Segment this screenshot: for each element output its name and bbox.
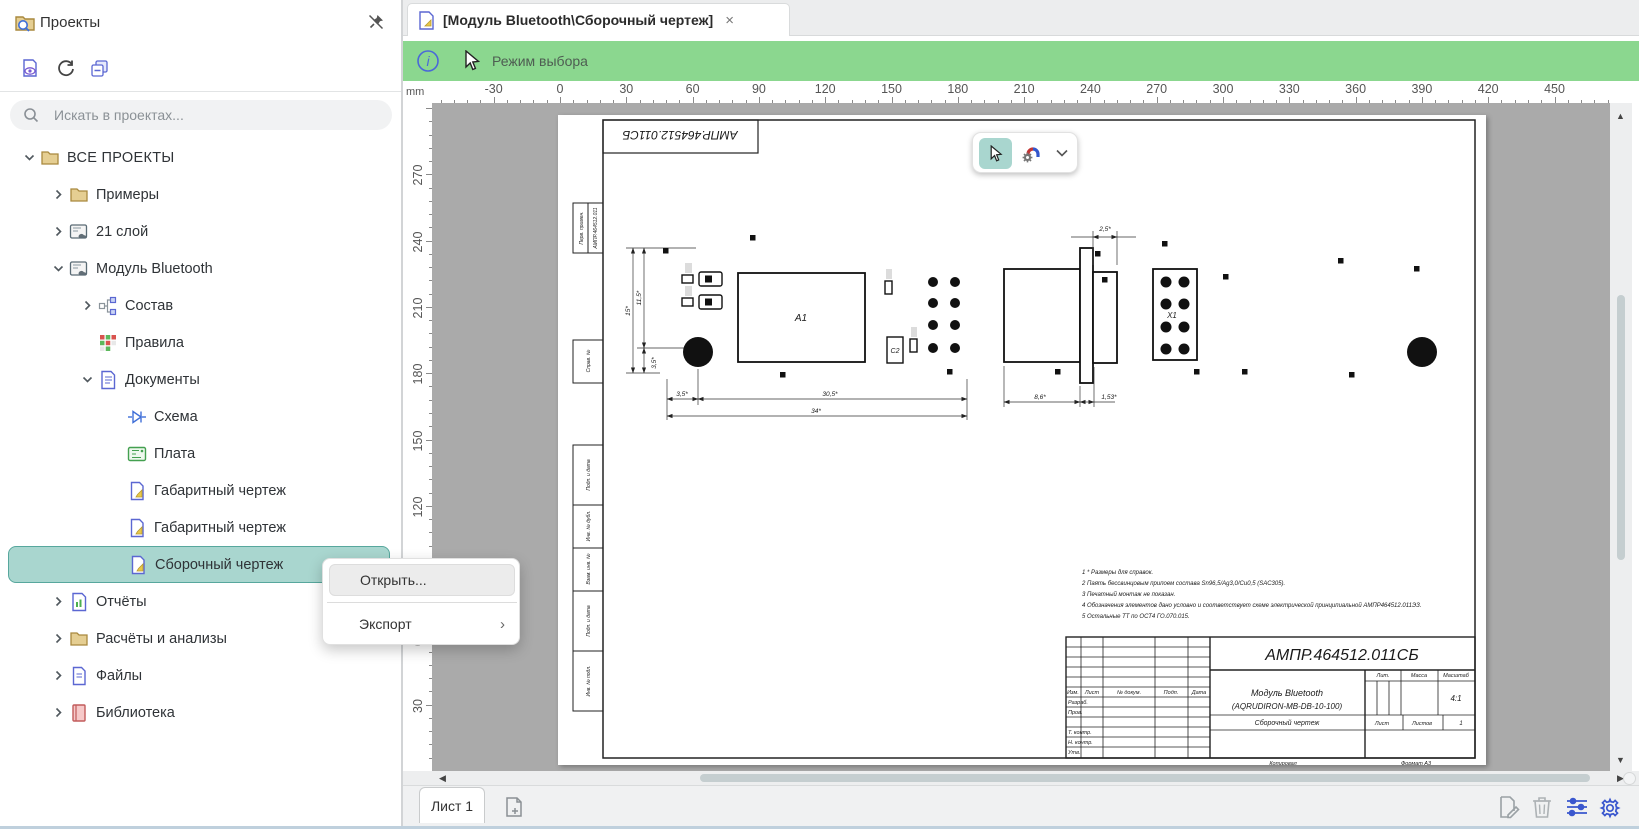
scroll-corner-knob <box>1623 772 1636 785</box>
ruler-label: 0 <box>557 82 564 96</box>
ruler-label: 270 <box>411 162 425 188</box>
tree-item-label: ВСЕ ПРОЕКТЫ <box>67 150 175 166</box>
svg-text:Разраб.: Разраб. <box>1068 700 1088 706</box>
cursor-icon <box>462 50 482 72</box>
chevron-spacer <box>105 522 127 534</box>
edit-document-icon[interactable] <box>1495 794 1521 820</box>
chevron-spacer <box>106 559 128 571</box>
vertical-scroll-thumb[interactable] <box>1617 295 1625 560</box>
chevron-down-icon[interactable] <box>47 263 69 275</box>
tree-item[interactable]: Схема <box>8 398 390 435</box>
svg-text:Т. контр.: Т. контр. <box>1068 730 1092 736</box>
trash-icon[interactable] <box>1529 794 1555 820</box>
tree-item-label: Габаритный чертеж <box>154 520 286 536</box>
search-icon <box>22 106 40 124</box>
ruler-label: 390 <box>1411 82 1432 96</box>
ruler-label: 240 <box>1080 82 1101 96</box>
scroll-up-icon[interactable]: ▲ <box>1616 111 1625 121</box>
tree-item[interactable]: Правила <box>8 324 390 361</box>
canvas-tool-palette <box>972 132 1078 173</box>
svg-text:Листов: Листов <box>1411 721 1432 727</box>
svg-text:(AQRUDIRON-MB-DB-10-100): (AQRUDIRON-MB-DB-10-100) <box>1232 702 1343 711</box>
svg-text:Инв. № подл.: Инв. № подл. <box>586 665 592 696</box>
tree-item-label: Состав <box>125 298 173 314</box>
chevron-right-icon[interactable] <box>76 300 98 312</box>
svg-text:АМПР.464512.011СБ: АМПР.464512.011СБ <box>1264 647 1419 664</box>
submenu-arrow-icon: › <box>500 616 505 633</box>
ruler-label: 270 <box>1146 82 1167 96</box>
tree-item[interactable]: Габаритный чертеж <box>8 509 390 546</box>
vertical-scrollbar[interactable]: ▲ ▼ <box>1610 103 1632 771</box>
svg-text:2 Паять бессвинцовым припоем с: 2 Паять бессвинцовым припоем состава Sn9… <box>1081 581 1285 587</box>
svg-text:Перв. примен.: Перв. примен. <box>579 211 585 244</box>
scroll-down-icon[interactable]: ▼ <box>1616 755 1625 765</box>
chevron-down-icon[interactable] <box>1051 141 1073 165</box>
documents-icon <box>98 370 118 390</box>
scroll-left-icon[interactable]: ◀ <box>439 773 446 784</box>
ruler-label: -30 <box>485 82 503 96</box>
document-tab[interactable]: [Модуль Bluetooth\Сборочный чертеж] × <box>407 3 790 36</box>
menu-divider <box>327 602 517 603</box>
reports-icon <box>69 592 89 612</box>
document-tab-bar: [Модуль Bluetooth\Сборочный чертеж] × <box>403 0 1639 36</box>
ruler-label: 30 <box>411 693 425 719</box>
ruler-label: 150 <box>881 82 902 96</box>
chevron-right-icon[interactable] <box>47 596 69 608</box>
svg-text:5 Остальные ТТ по ОСТ4 ГО.070.: 5 Остальные ТТ по ОСТ4 ГО.070.015. <box>1082 614 1190 620</box>
refresh-icon[interactable] <box>52 55 80 83</box>
chevron-right-icon[interactable] <box>47 226 69 238</box>
svg-text:Утв.: Утв. <box>1067 750 1081 756</box>
chevron-down-icon[interactable] <box>76 374 98 386</box>
display-settings-icon[interactable] <box>1564 794 1590 820</box>
drawing-doc-icon <box>128 555 148 575</box>
search-box <box>10 100 392 130</box>
horizontal-scrollbar[interactable]: ◀ ▶ <box>403 771 1639 785</box>
sheet-tab[interactable]: Лист 1 <box>419 787 485 823</box>
schematic-icon <box>127 407 147 427</box>
menu-item-label: Экспорт <box>359 616 412 632</box>
drawing-doc-icon <box>127 481 147 501</box>
svg-text:Взам. инв. №: Взам. инв. № <box>586 553 592 585</box>
svg-text:2,5*: 2,5* <box>1098 226 1111 233</box>
structure-icon <box>98 296 118 316</box>
tree-item[interactable]: Документы <box>8 361 390 398</box>
unpin-icon[interactable] <box>366 12 386 32</box>
tree-item-label: Модуль Bluetooth <box>96 261 213 277</box>
chevron-right-icon[interactable] <box>47 633 69 645</box>
svg-text:Формат А3: Формат А3 <box>1401 761 1432 765</box>
ruler-label: 180 <box>947 82 968 96</box>
tree-item[interactable]: Плата <box>8 435 390 472</box>
svg-text:C2: C2 <box>891 348 900 355</box>
svg-text:Инв. № дубл.: Инв. № дубл. <box>586 511 592 542</box>
info-icon[interactable]: i <box>416 49 440 73</box>
chevron-down-icon[interactable] <box>18 152 40 164</box>
tree-item-label: Габаритный чертеж <box>154 483 286 499</box>
svg-text:1: 1 <box>1459 721 1462 727</box>
svg-text:Сборочный чертеж: Сборочный чертеж <box>1255 719 1321 727</box>
ruler-label: 180 <box>411 361 425 387</box>
ruler-label: 360 <box>1345 82 1366 96</box>
svg-text:Лит.: Лит. <box>1376 673 1390 679</box>
svg-text:i: i <box>426 53 430 69</box>
svg-text:Подп. и дата: Подп. и дата <box>586 459 592 491</box>
tree-item[interactable]: 21 слой <box>8 213 390 250</box>
folder-icon <box>40 148 60 168</box>
svg-text:Лист: Лист <box>1374 721 1390 727</box>
folder-icon <box>69 629 89 649</box>
ruler-label: 150 <box>411 428 425 454</box>
document-visibility-icon[interactable] <box>16 55 44 83</box>
svg-text:Масштаб: Масштаб <box>1443 673 1470 679</box>
app-window: Проекты ВСЕ ПРОЕКТЫПримеры21 слойМодуль … <box>0 0 1639 829</box>
svg-text:3,5*: 3,5* <box>651 357 658 369</box>
mode-label: Режим выбора <box>492 53 588 69</box>
ruler-label: 210 <box>1014 82 1035 96</box>
ruler-label: 90 <box>752 82 766 96</box>
library-icon <box>69 703 89 723</box>
svg-text:Изм.: Изм. <box>1067 690 1079 696</box>
ruler-label: 210 <box>411 295 425 321</box>
tree-item[interactable]: Библиотека <box>8 694 390 731</box>
tree-item-label: Схема <box>154 409 198 425</box>
horizontal-ruler: -300306090120150180210240270300330360390… <box>432 81 1610 103</box>
svg-text:30,5*: 30,5* <box>822 391 838 398</box>
drawing-sheet: АМПР.464512.011СБ Перв. примен. АМПР.464… <box>558 115 1486 765</box>
tree-item-label: Расчёты и анализы <box>96 631 227 647</box>
svg-text:X1: X1 <box>1166 311 1177 320</box>
ruler-label: 120 <box>815 82 836 96</box>
svg-text:АМПР.464512.011: АМПР.464512.011 <box>593 207 599 249</box>
tree-item-label: Библиотека <box>96 705 175 721</box>
ruler-label: 240 <box>411 229 425 255</box>
project-icon <box>69 259 89 279</box>
collapse-all-icon[interactable] <box>86 55 114 83</box>
panel-title: Проекты <box>40 14 100 31</box>
svg-text:34*: 34* <box>811 408 821 415</box>
svg-text:АМПР.464512.011СБ: АМПР.464512.011СБ <box>622 128 738 142</box>
ruler-label: 450 <box>1544 82 1565 96</box>
tree-item-label: Документы <box>125 372 200 388</box>
projects-toolbar <box>0 47 401 92</box>
tree-item-label: Сборочный чертеж <box>155 557 283 573</box>
chevron-right-icon[interactable] <box>47 670 69 682</box>
tree-item-label: Файлы <box>96 668 142 684</box>
tree-item[interactable]: Файлы <box>8 657 390 694</box>
chevron-right-icon[interactable] <box>47 189 69 201</box>
svg-text:Дата: Дата <box>1191 690 1207 696</box>
tree-item-label: Примеры <box>96 187 159 203</box>
drawing-doc-icon <box>418 11 435 30</box>
tree-item[interactable]: Состав <box>8 287 390 324</box>
vertical-ruler: 270240210180150120906030 <box>403 103 432 771</box>
add-sheet-icon[interactable] <box>501 794 527 820</box>
ruler-label: 330 <box>1279 82 1300 96</box>
drawing-canvas[interactable]: АМПР.464512.011СБ Перв. примен. АМПР.464… <box>432 103 1610 771</box>
ruler-unit: mm <box>403 81 432 103</box>
svg-text:8,6*: 8,6* <box>1034 394 1046 401</box>
menu-item[interactable]: Экспорт› <box>329 608 515 640</box>
folder-search-icon <box>13 11 37 35</box>
rules-icon <box>98 333 118 353</box>
svg-text:Лист: Лист <box>1084 690 1100 696</box>
ruler-label: 420 <box>1478 82 1499 96</box>
board-icon <box>127 444 147 464</box>
svg-text:3,5*: 3,5* <box>676 391 688 398</box>
snap-settings-icon[interactable] <box>1019 140 1045 166</box>
files-icon <box>69 666 89 686</box>
svg-text:11,5*: 11,5* <box>636 290 643 305</box>
tree-item[interactable]: Модуль Bluetooth <box>8 250 390 287</box>
tree-item-label: Отчёты <box>96 594 147 610</box>
svg-text:Справ. №: Справ. № <box>586 349 592 372</box>
chevron-spacer <box>76 337 98 349</box>
svg-text:4:1: 4:1 <box>1450 694 1461 703</box>
tree-item-label: Плата <box>154 446 195 462</box>
tree-item[interactable]: Габаритный чертеж <box>8 472 390 509</box>
chevron-spacer <box>105 448 127 460</box>
svg-text:Подп. и дата: Подп. и дата <box>586 605 592 637</box>
svg-text:Подп.: Подп. <box>1164 690 1179 696</box>
projects-panel-header: Проекты <box>0 0 401 47</box>
svg-text:A1: A1 <box>794 313 807 324</box>
svg-text:1,53*: 1,53* <box>1101 394 1117 401</box>
tree-item-label: Правила <box>125 335 184 351</box>
svg-text:4 Обозначения элементов дано у: 4 Обозначения элементов дано условно и с… <box>1082 602 1421 609</box>
svg-text:3 Печатный монтаж не показан.: 3 Печатный монтаж не показан. <box>1082 591 1175 598</box>
drawing-doc-icon <box>127 518 147 538</box>
menu-item-label: Открыть... <box>360 572 427 588</box>
project-icon <box>69 222 89 242</box>
svg-text:Копировал: Копировал <box>1269 761 1296 765</box>
svg-text:Масса: Масса <box>1411 673 1427 679</box>
tree-item[interactable]: Примеры <box>8 176 390 213</box>
ruler-label: 60 <box>686 82 700 96</box>
ruler-label: 300 <box>1213 82 1234 96</box>
ruler-label: 120 <box>411 494 425 520</box>
chevron-spacer <box>105 485 127 497</box>
horizontal-scroll-thumb[interactable] <box>700 774 1590 782</box>
tree-item[interactable]: ВСЕ ПРОЕКТЫ <box>8 139 390 176</box>
chevron-spacer <box>105 411 127 423</box>
close-icon[interactable]: × <box>725 12 734 29</box>
chevron-right-icon[interactable] <box>47 707 69 719</box>
svg-text:Пров.: Пров. <box>1068 710 1083 716</box>
context-menu: Открыть...Экспорт› <box>322 558 520 645</box>
projects-panel: Проекты ВСЕ ПРОЕКТЫПримеры21 слойМодуль … <box>0 0 401 829</box>
folder-icon <box>69 185 89 205</box>
tree-item-label: 21 слой <box>96 224 148 240</box>
svg-text:1 * Размеры для справок.: 1 * Размеры для справок. <box>1082 570 1153 576</box>
svg-text:Н. контр.: Н. контр. <box>1068 740 1093 746</box>
select-tool-button[interactable] <box>979 138 1012 169</box>
ruler-label: 30 <box>619 82 633 96</box>
tab-title: [Модуль Bluetooth\Сборочный чертеж] <box>443 12 713 28</box>
svg-text:15*: 15* <box>625 306 632 316</box>
sheet-bar: Лист 1 <box>403 785 1639 826</box>
svg-text:№ докум.: № докум. <box>1117 690 1141 696</box>
svg-text:Модуль Bluetooth: Модуль Bluetooth <box>1251 688 1323 698</box>
search-input[interactable] <box>52 100 382 130</box>
gear-icon[interactable] <box>1597 794 1623 820</box>
mode-status-bar: i Режим выбора <box>403 41 1639 81</box>
menu-item[interactable]: Открыть... <box>329 564 515 596</box>
assembly-drawing: АМПР.464512.011СБ Перв. примен. АМПР.464… <box>558 115 1486 765</box>
